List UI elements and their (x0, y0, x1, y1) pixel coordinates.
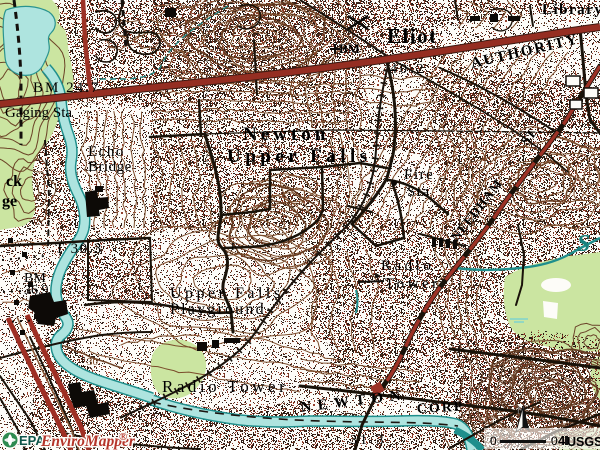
svg-text:T 30.3: T 30.3 (55, 241, 103, 257)
svg-text:ck: ck (6, 173, 22, 190)
svg-text:30: 30 (87, 356, 99, 368)
svg-text:Fire: Fire (404, 167, 434, 183)
svg-text:Library: Library (542, 2, 600, 18)
svg-text:Eliot: Eliot (387, 24, 438, 48)
svg-text:USGS: USGS (567, 435, 600, 449)
svg-text:ge: ge (2, 193, 17, 210)
svg-text:®: ® (119, 431, 127, 443)
svg-text:Upper Falls: Upper Falls (170, 285, 284, 302)
svg-text:Newton: Newton (243, 124, 329, 145)
svg-text:Radio: Radio (381, 258, 434, 274)
svg-text:Sta: Sta (407, 184, 431, 200)
svg-text:36.9: 36.9 (24, 283, 49, 298)
svg-text:Upper Falls: Upper Falls (227, 146, 372, 167)
svg-text:CORP: CORP (416, 400, 464, 417)
svg-text:4: 4 (558, 433, 566, 448)
svg-text:BM: BM (339, 41, 360, 56)
svg-text:S: S (577, 231, 590, 257)
svg-text:Radio Tower: Radio Tower (162, 377, 288, 396)
svg-text:Bridge: Bridge (88, 159, 132, 175)
svg-text:Playground: Playground (170, 301, 266, 318)
svg-text:Tower: Tower (385, 276, 441, 292)
svg-text:0: 0 (490, 434, 497, 448)
svg-text:31 3: 31 3 (350, 433, 387, 448)
svg-text:40.2: 40.2 (390, 62, 427, 77)
svg-text:Gaging Sta: Gaging Sta (5, 105, 72, 121)
svg-text:0: 0 (551, 434, 558, 448)
svg-text:BM 24.7: BM 24.7 (33, 80, 100, 96)
svg-text:F: F (231, 241, 237, 253)
svg-text:Echo: Echo (88, 144, 125, 160)
